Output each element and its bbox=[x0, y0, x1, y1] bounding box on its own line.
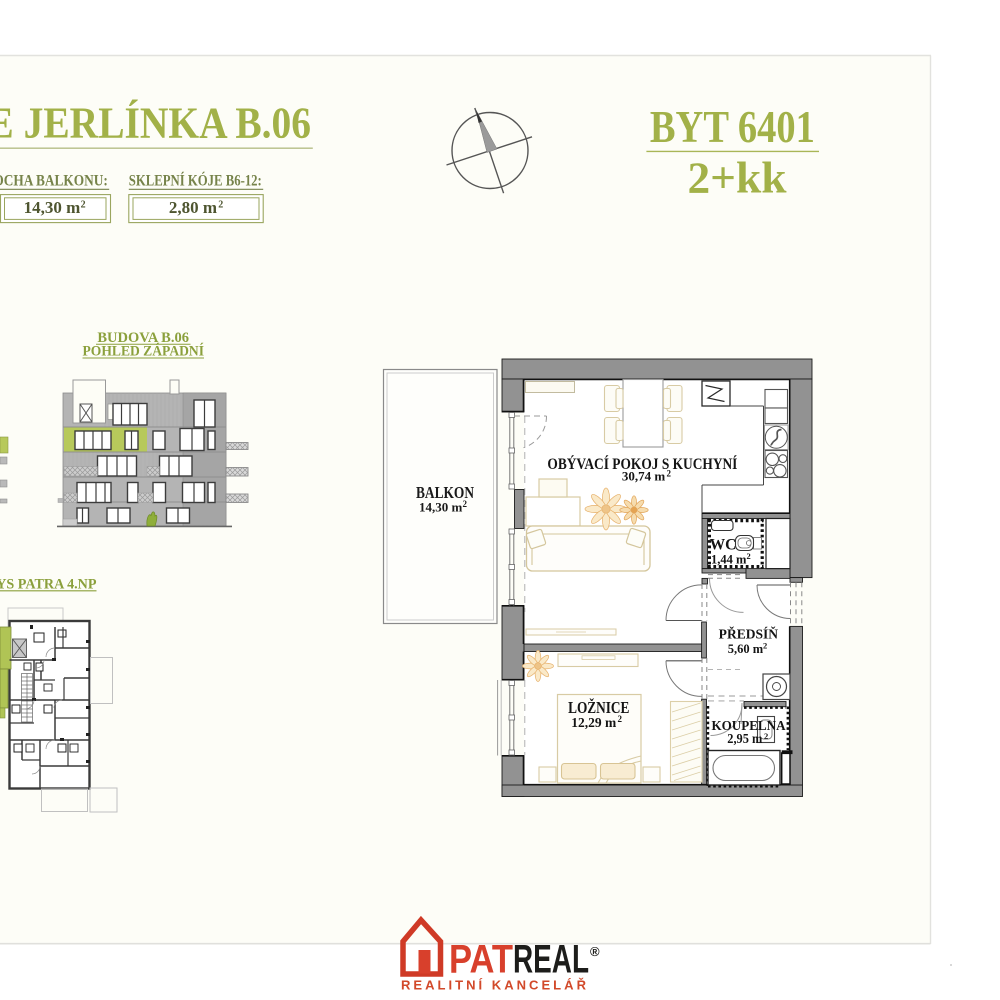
svg-text:REAL: REAL bbox=[513, 938, 589, 982]
svg-text:12,29 m: 12,29 m bbox=[571, 715, 617, 730]
svg-text:SKLEPNÍ KÓJE B6-12:: SKLEPNÍ KÓJE B6-12: bbox=[129, 170, 262, 189]
svg-text:REALITNÍ KANCELÁŘ: REALITNÍ KANCELÁŘ bbox=[401, 978, 589, 993]
svg-text:POHLED ZÁPADNÍ: POHLED ZÁPADNÍ bbox=[83, 343, 205, 360]
svg-text:WC: WC bbox=[710, 537, 737, 554]
svg-text:1,44 m: 1,44 m bbox=[711, 553, 747, 567]
svg-text:2: 2 bbox=[81, 200, 86, 211]
svg-text:2: 2 bbox=[747, 551, 751, 561]
svg-text:2: 2 bbox=[218, 200, 223, 211]
svg-text:2: 2 bbox=[667, 468, 672, 478]
svg-text:®: ® bbox=[590, 944, 600, 959]
svg-text:2,80 m: 2,80 m bbox=[169, 198, 217, 217]
svg-text:2,95 m: 2,95 m bbox=[727, 732, 762, 747]
svg-text:PŘEDSÍŇ: PŘEDSÍŇ bbox=[719, 627, 779, 642]
svg-text:14,30 m: 14,30 m bbox=[419, 500, 463, 515]
svg-text:PAT: PAT bbox=[449, 938, 513, 982]
svg-text:2: 2 bbox=[764, 731, 768, 741]
svg-text:PLOCHA BALKONU:: PLOCHA BALKONU: bbox=[0, 172, 108, 189]
svg-text:2: 2 bbox=[763, 641, 767, 651]
svg-text:30,74 m: 30,74 m bbox=[622, 469, 666, 484]
svg-text:5,60 m: 5,60 m bbox=[728, 642, 764, 656]
svg-text:2+kk: 2+kk bbox=[688, 154, 788, 203]
svg-text:2: 2 bbox=[618, 714, 623, 724]
svg-text:2: 2 bbox=[463, 499, 468, 509]
svg-text:BYT 6401: BYT 6401 bbox=[650, 102, 815, 152]
svg-text:14,30 m: 14,30 m bbox=[24, 198, 81, 217]
svg-text:PŮDORYS PATRA 4.NP: PŮDORYS PATRA 4.NP bbox=[0, 576, 97, 593]
svg-text:REZIDENCE JERLÍNKA B.06: REZIDENCE JERLÍNKA B.06 bbox=[0, 99, 311, 148]
